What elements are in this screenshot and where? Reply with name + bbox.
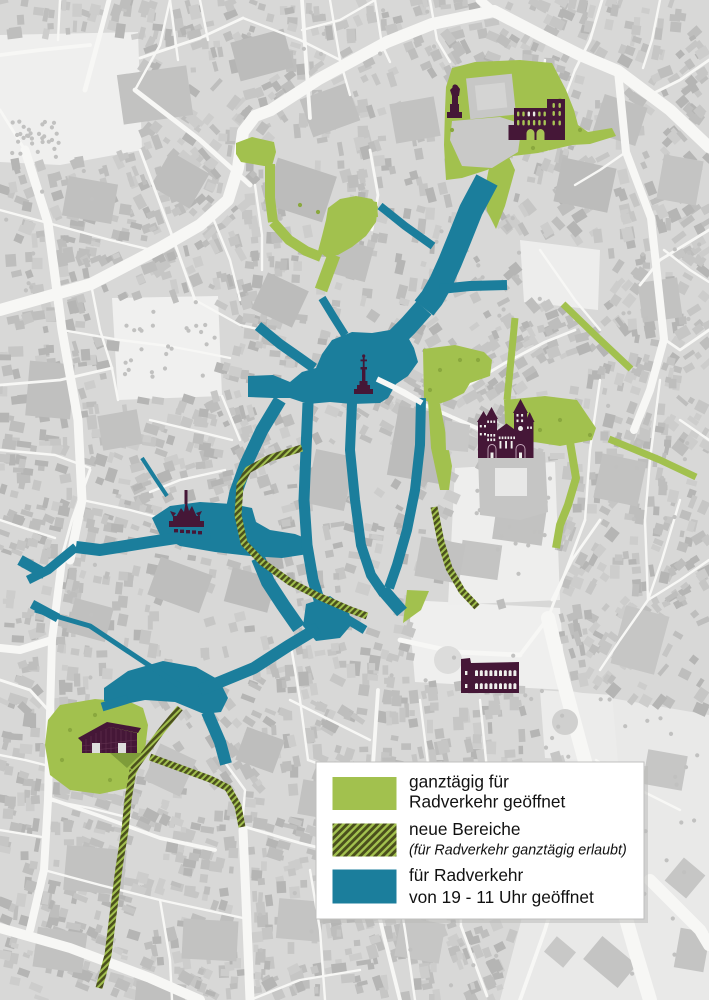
svg-text:ganztägig für: ganztägig für xyxy=(409,772,509,792)
svg-text:neue Bereiche: neue Bereiche xyxy=(409,819,520,839)
svg-text:(für Radverkehr ganztägig erla: (für Radverkehr ganztägig erlaubt) xyxy=(409,843,627,859)
svg-text:für Radverkehr: für Radverkehr xyxy=(409,865,524,885)
svg-text:von 19 - 11 Uhr geöffnet: von 19 - 11 Uhr geöffnet xyxy=(409,887,594,907)
svg-text:Radverkehr geöffnet: Radverkehr geöffnet xyxy=(409,792,565,812)
